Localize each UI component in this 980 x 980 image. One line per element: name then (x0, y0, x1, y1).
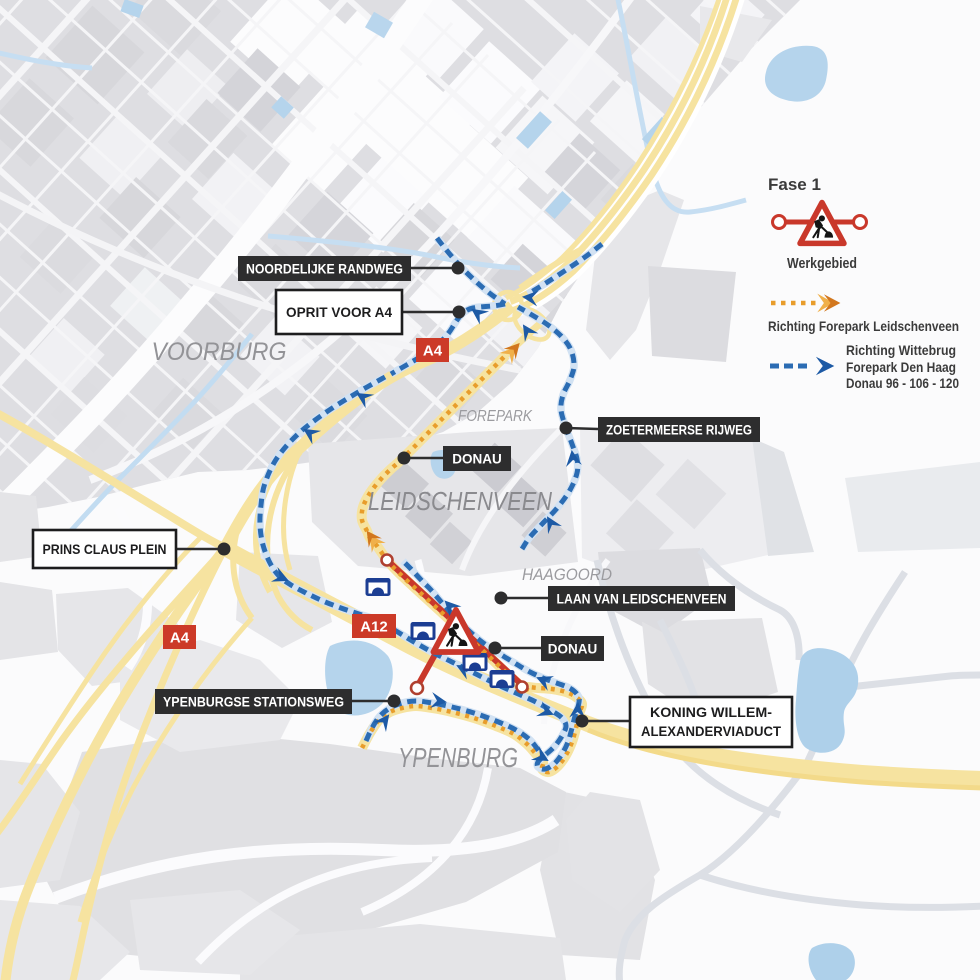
svg-text:PRINS CLAUS PLEIN: PRINS CLAUS PLEIN (43, 542, 167, 557)
svg-text:LAAN VAN LEIDSCHENVEEN: LAAN VAN LEIDSCHENVEEN (557, 592, 727, 607)
svg-text:A4: A4 (423, 342, 443, 359)
svg-text:Richting Wittebrug: Richting Wittebrug (846, 342, 956, 358)
svg-text:ZOETERMEERSE RIJWEG: ZOETERMEERSE RIJWEG (606, 423, 752, 438)
svg-text:Forepark Den Haag: Forepark Den Haag (846, 359, 956, 375)
svg-text:KONING WILLEM-: KONING WILLEM- (650, 705, 772, 720)
svg-text:Donau 96 - 106 - 120: Donau 96 - 106 - 120 (846, 375, 959, 391)
svg-text:HAAGOORD: HAAGOORD (522, 565, 612, 584)
svg-text:Richting Forepark Leidschenvee: Richting Forepark Leidschenveen (768, 318, 959, 334)
svg-text:OPRIT VOOR A4: OPRIT VOOR A4 (286, 305, 392, 320)
svg-text:DONAU: DONAU (452, 452, 502, 467)
svg-text:YPENBURGSE STATIONSWEG: YPENBURGSE STATIONSWEG (163, 695, 344, 710)
svg-text:VOORBURG: VOORBURG (152, 338, 287, 366)
svg-text:LEIDSCHENVEEN: LEIDSCHENVEEN (368, 486, 552, 516)
svg-text:Fase 1: Fase 1 (768, 175, 821, 194)
svg-text:YPENBURG: YPENBURG (398, 742, 518, 773)
svg-text:A4: A4 (170, 629, 190, 646)
svg-text:FOREPARK: FOREPARK (458, 408, 533, 425)
svg-text:Werkgebied: Werkgebied (787, 256, 857, 272)
svg-text:ALEXANDERVIADUCT: ALEXANDERVIADUCT (641, 724, 782, 739)
svg-text:A12: A12 (360, 618, 388, 635)
svg-text:DONAU: DONAU (548, 642, 598, 657)
svg-text:NOORDELIJKE RANDWEG: NOORDELIJKE RANDWEG (246, 262, 403, 277)
